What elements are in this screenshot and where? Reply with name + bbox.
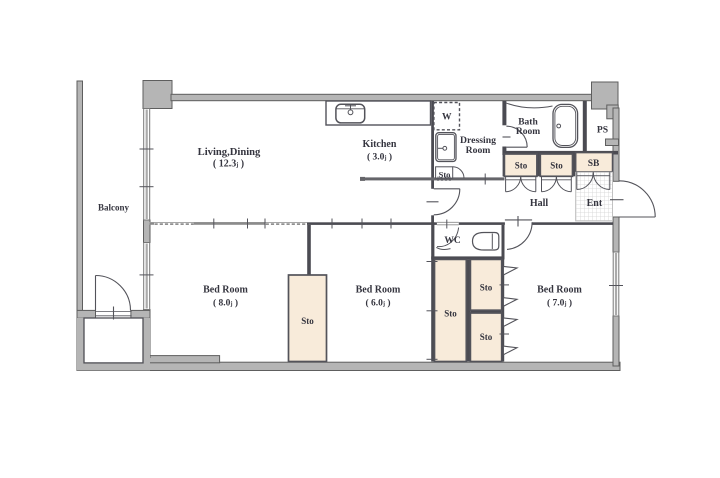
svg-text:Kitchen: Kitchen [363,139,397,150]
svg-text:( 6.0j ): ( 6.0j ) [366,297,391,308]
svg-text:Ent: Ent [587,198,603,209]
svg-text:Bed Room: Bed Room [537,285,582,296]
svg-text:Sto: Sto [480,332,493,342]
svg-text:Sto: Sto [480,283,493,293]
svg-text:Room: Room [516,127,540,137]
svg-text:WC: WC [444,236,461,246]
svg-text:( 3.0j ): ( 3.0j ) [367,152,392,163]
svg-text:SB: SB [588,159,600,169]
svg-text:Bed Room: Bed Room [356,285,401,296]
svg-text:Sto: Sto [550,161,563,171]
svg-text:( 8.0j ): ( 8.0j ) [213,297,238,308]
svg-text:Balcony: Balcony [98,202,130,212]
svg-text:Sto: Sto [439,169,451,179]
svg-text:W: W [442,113,452,123]
svg-text:Bed Room: Bed Room [203,285,248,296]
svg-text:Living,Dining: Living,Dining [198,147,261,158]
svg-text:Sto: Sto [301,316,314,326]
svg-text:( 12.3j ): ( 12.3j ) [213,159,244,170]
svg-text:( 7.0j ): ( 7.0j ) [547,297,572,308]
svg-text:Sto: Sto [515,161,528,171]
svg-text:PS: PS [597,124,608,135]
svg-text:Sto: Sto [444,309,457,319]
svg-text:Room: Room [466,145,491,156]
svg-text:Hall: Hall [530,198,549,209]
